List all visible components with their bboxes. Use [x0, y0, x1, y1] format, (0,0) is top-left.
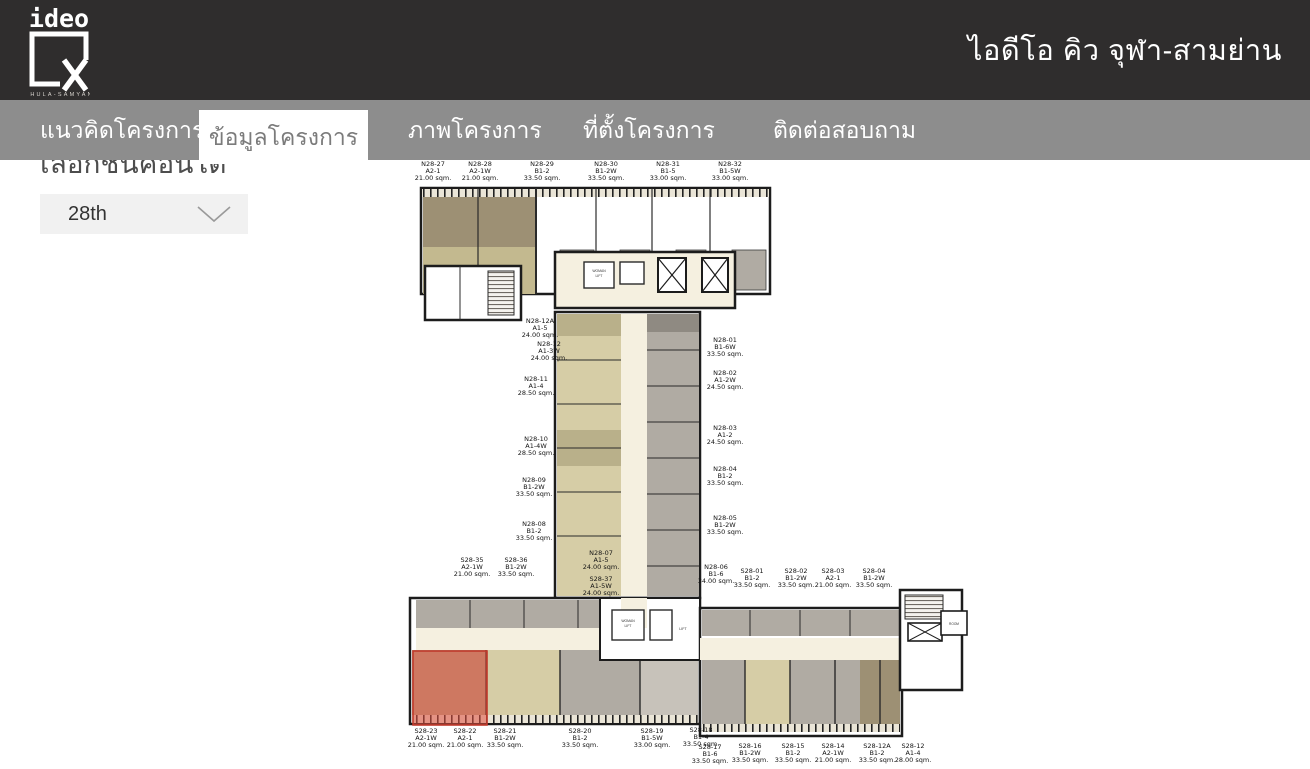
tab-contact[interactable]: ติดต่อสอบถาม: [773, 100, 916, 160]
elevator-core-upper: WOMAN LIFT: [555, 252, 735, 308]
floorplan-drawing: WOMAN LIFT: [408, 156, 968, 769]
tab-project-concept[interactable]: แนวคิดโครงการ: [40, 100, 204, 160]
room-label: ROOM: [949, 622, 959, 626]
lift-shaft-icon: [658, 258, 686, 292]
selected-unit-highlight[interactable]: [413, 651, 487, 725]
woman-lift-label: WOMAN: [621, 619, 635, 623]
logo-brand-text: ideo: [29, 4, 89, 33]
woman-lift-label: LIFT: [596, 274, 603, 278]
lift-shaft-icon: [908, 623, 942, 641]
center-wing: [555, 312, 700, 598]
page-title: ไอดีโอ คิว จุฬา-สามย่าน: [968, 27, 1282, 73]
woman-lift-label: WOMAN: [592, 269, 606, 273]
ideo-q-logo[interactable]: ideo CHULA-SAMYAN: [28, 4, 90, 98]
logo-subtitle: CHULA-SAMYAN: [28, 92, 90, 98]
app-header: ideo CHULA-SAMYAN ไอดีโอ คิว จุฬา-สามย่า…: [0, 0, 1310, 100]
woman-lift-label: LIFT: [625, 624, 632, 628]
tab-project-gallery[interactable]: ภาพโครงการ: [408, 100, 542, 160]
tab-project-info[interactable]: ข้อมูลโครงการ: [199, 110, 368, 164]
service-block-right: ROOM: [900, 590, 967, 690]
main-navigation: แนวคิดโครงการ ข้อมูลโครงการ ภาพโครงการ ท…: [0, 100, 1310, 160]
tab-project-location[interactable]: ที่ตั้งโครงการ: [583, 100, 715, 160]
chevron-down-icon: [196, 205, 232, 223]
floor-dropdown-value: 28th: [68, 203, 107, 226]
lift-shaft-icon: [702, 258, 728, 292]
stairwell-block: [425, 266, 521, 320]
lift-label: LIFT: [679, 627, 687, 631]
elevator-core-lower: WOMAN LIFT LIFT: [600, 598, 700, 660]
floor-dropdown[interactable]: 28th: [40, 194, 248, 234]
